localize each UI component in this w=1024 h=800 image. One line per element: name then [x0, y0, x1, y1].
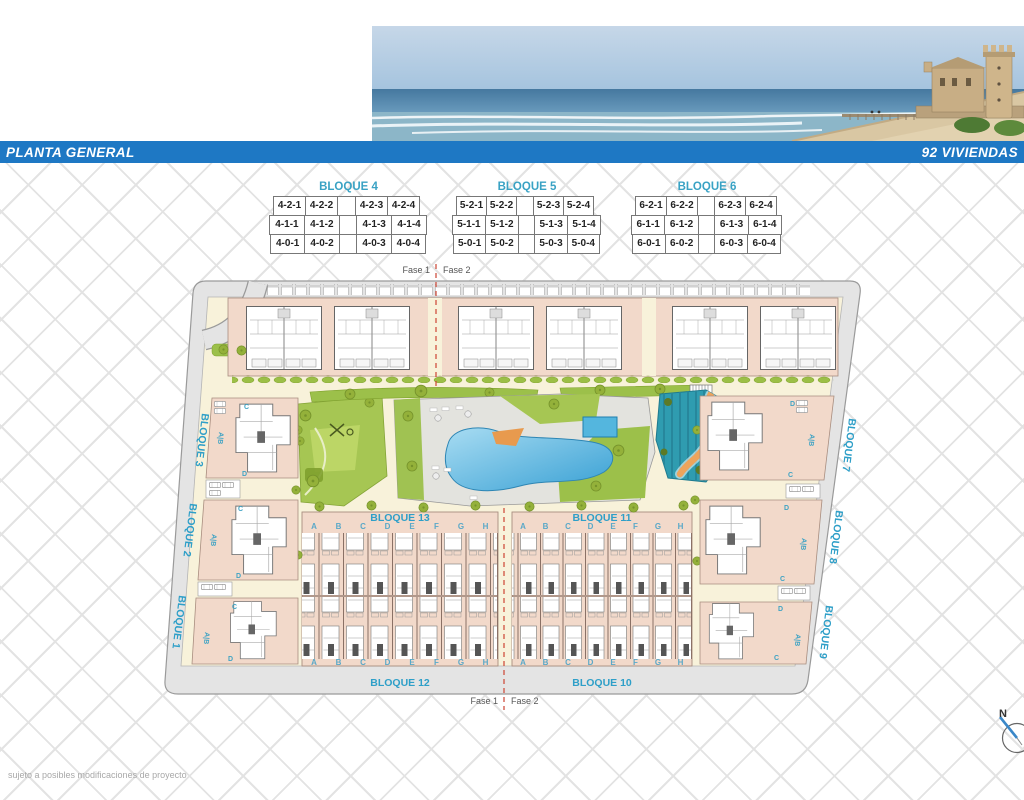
- apartment-band: [228, 298, 838, 383]
- bloque6-building: [761, 307, 836, 370]
- svg-text:C: C: [360, 658, 366, 667]
- svg-text:H: H: [483, 658, 489, 667]
- svg-text:G: G: [458, 522, 464, 531]
- svg-text:D: D: [242, 471, 247, 478]
- svg-text:A: A: [520, 522, 526, 531]
- fase2-label-top: Fase 2: [443, 265, 471, 275]
- bloque6-building: [673, 307, 748, 370]
- street-parking: [250, 284, 810, 295]
- svg-text:A|B: A|B: [807, 434, 815, 447]
- townhouses-left: [302, 512, 498, 666]
- bloque10-label: BLOQUE 10: [572, 677, 632, 689]
- bloque5-building: [547, 307, 622, 370]
- bloque5-building: [459, 307, 534, 370]
- svg-text:G: G: [655, 658, 661, 667]
- bloque4-building: [247, 307, 322, 370]
- svg-text:A|B: A|B: [799, 538, 807, 551]
- bloque11-label: BLOQUE 11: [573, 512, 632, 524]
- fase1-label-top: Fase 1: [402, 265, 430, 275]
- svg-text:C: C: [360, 522, 366, 531]
- bloque9-label: BLOQUE 9: [816, 605, 834, 660]
- svg-text:D: D: [228, 656, 233, 663]
- bloque4-building: [335, 307, 410, 370]
- svg-text:C: C: [565, 658, 571, 667]
- svg-text:C: C: [565, 522, 571, 531]
- svg-text:C: C: [780, 576, 785, 583]
- svg-text:F: F: [434, 658, 439, 667]
- svg-text:B: B: [336, 658, 342, 667]
- svg-text:D: D: [236, 573, 241, 580]
- svg-text:C: C: [788, 472, 793, 479]
- svg-text:G: G: [458, 658, 464, 667]
- svg-text:G: G: [655, 522, 661, 531]
- svg-text:E: E: [610, 658, 616, 667]
- bloque13-label: BLOQUE 13: [370, 512, 430, 524]
- svg-text:D: D: [790, 401, 795, 408]
- svg-text:B: B: [543, 522, 549, 531]
- svg-text:A: A: [311, 658, 317, 667]
- svg-text:E: E: [409, 658, 415, 667]
- svg-text:A|B: A|B: [202, 632, 210, 645]
- svg-text:C: C: [232, 604, 237, 611]
- svg-text:B: B: [543, 658, 549, 667]
- townhouses-right: [512, 512, 692, 666]
- svg-text:F: F: [633, 658, 638, 667]
- svg-text:A|B: A|B: [209, 534, 217, 547]
- svg-text:F: F: [633, 522, 638, 531]
- svg-text:H: H: [483, 522, 489, 531]
- svg-text:H: H: [678, 658, 684, 667]
- svg-text:H: H: [678, 522, 684, 531]
- svg-text:A|B: A|B: [793, 634, 801, 647]
- svg-text:D: D: [588, 658, 594, 667]
- svg-text:D: D: [385, 658, 391, 667]
- fase2-label-bottom: Fase 2: [511, 696, 539, 706]
- svg-text:C: C: [238, 506, 243, 513]
- svg-text:D: D: [778, 606, 783, 613]
- svg-text:A|B: A|B: [216, 432, 224, 445]
- disclaimer-note: sujeto a posibles modificaciones de proy…: [8, 770, 187, 780]
- fase1-label-bottom: Fase 1: [470, 696, 498, 706]
- svg-text:B: B: [336, 522, 342, 531]
- svg-text:F: F: [434, 522, 439, 531]
- svg-text:C: C: [244, 404, 249, 411]
- small-pool: [583, 417, 617, 437]
- svg-text:A: A: [520, 658, 526, 667]
- svg-text:A: A: [311, 522, 317, 531]
- svg-text:D: D: [784, 505, 789, 512]
- compass-north-label: N: [999, 708, 1007, 720]
- compass: N: [999, 708, 1024, 753]
- svg-text:C: C: [774, 655, 779, 662]
- site-plan: Fase 1 Fase 2 Fase 1 Fase 2: [0, 0, 1024, 800]
- bloque12-label: BLOQUE 12: [370, 677, 430, 689]
